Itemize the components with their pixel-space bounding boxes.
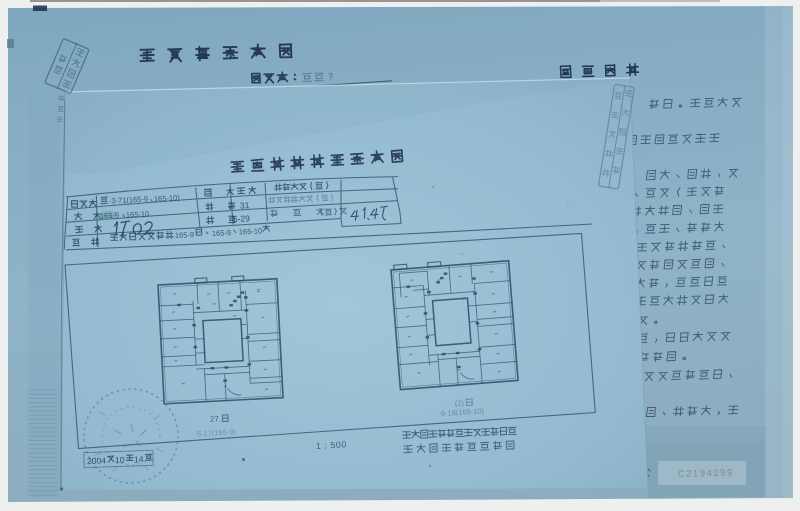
- svg-text:165-10): 165-10): [154, 193, 181, 203]
- svg-text:1 : 500: 1 : 500: [316, 439, 348, 451]
- svg-text:165-10: 165-10: [126, 209, 150, 219]
- svg-text:10: 10: [115, 455, 125, 465]
- svg-text:C2194299: C2194299: [678, 468, 734, 480]
- svg-text:165-10: 165-10: [239, 226, 263, 236]
- svg-text:31: 31: [240, 200, 250, 210]
- svg-text:5-29: 5-29: [233, 213, 251, 224]
- svg-text:165-9: 165-9: [100, 211, 120, 221]
- svg-text:27.: 27.: [210, 414, 222, 424]
- svg-text:165-9: 165-9: [212, 228, 232, 238]
- svg-text:14: 14: [134, 454, 144, 464]
- svg-text:(2): (2): [455, 398, 465, 408]
- svg-text:2004: 2004: [87, 455, 107, 466]
- svg-text:165-9: 165-9: [175, 230, 195, 240]
